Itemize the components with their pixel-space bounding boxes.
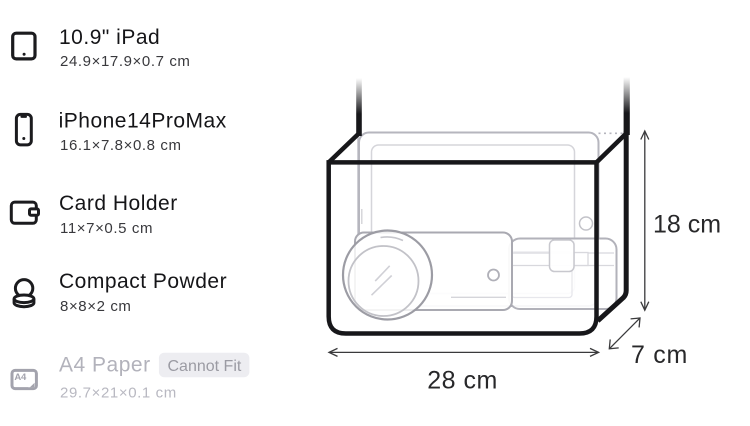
svg-text:iPhone14ProMax: iPhone14ProMax [59,110,227,133]
svg-text:Compact Powder: Compact Powder [59,270,227,293]
svg-text:Cannot Fit: Cannot Fit [168,358,242,375]
svg-text:29.7×21×0.1 cm: 29.7×21×0.1 cm [60,385,177,402]
svg-text:Card Holder: Card Holder [59,192,178,215]
svg-text:A4 Paper: A4 Paper [59,354,151,377]
svg-text:18 cm: 18 cm [653,211,721,239]
svg-text:7 cm: 7 cm [631,341,688,369]
svg-text:10.9" iPad: 10.9" iPad [59,26,160,49]
svg-text:16.1×7.8×0.8 cm: 16.1×7.8×0.8 cm [60,137,182,154]
svg-text:24.9×17.9×0.7 cm: 24.9×17.9×0.7 cm [60,53,191,70]
svg-text:A4: A4 [14,372,27,383]
svg-text:8×8×2 cm: 8×8×2 cm [60,298,132,315]
svg-text:11×7×0.5 cm: 11×7×0.5 cm [60,220,153,237]
svg-text:28 cm: 28 cm [427,366,498,394]
